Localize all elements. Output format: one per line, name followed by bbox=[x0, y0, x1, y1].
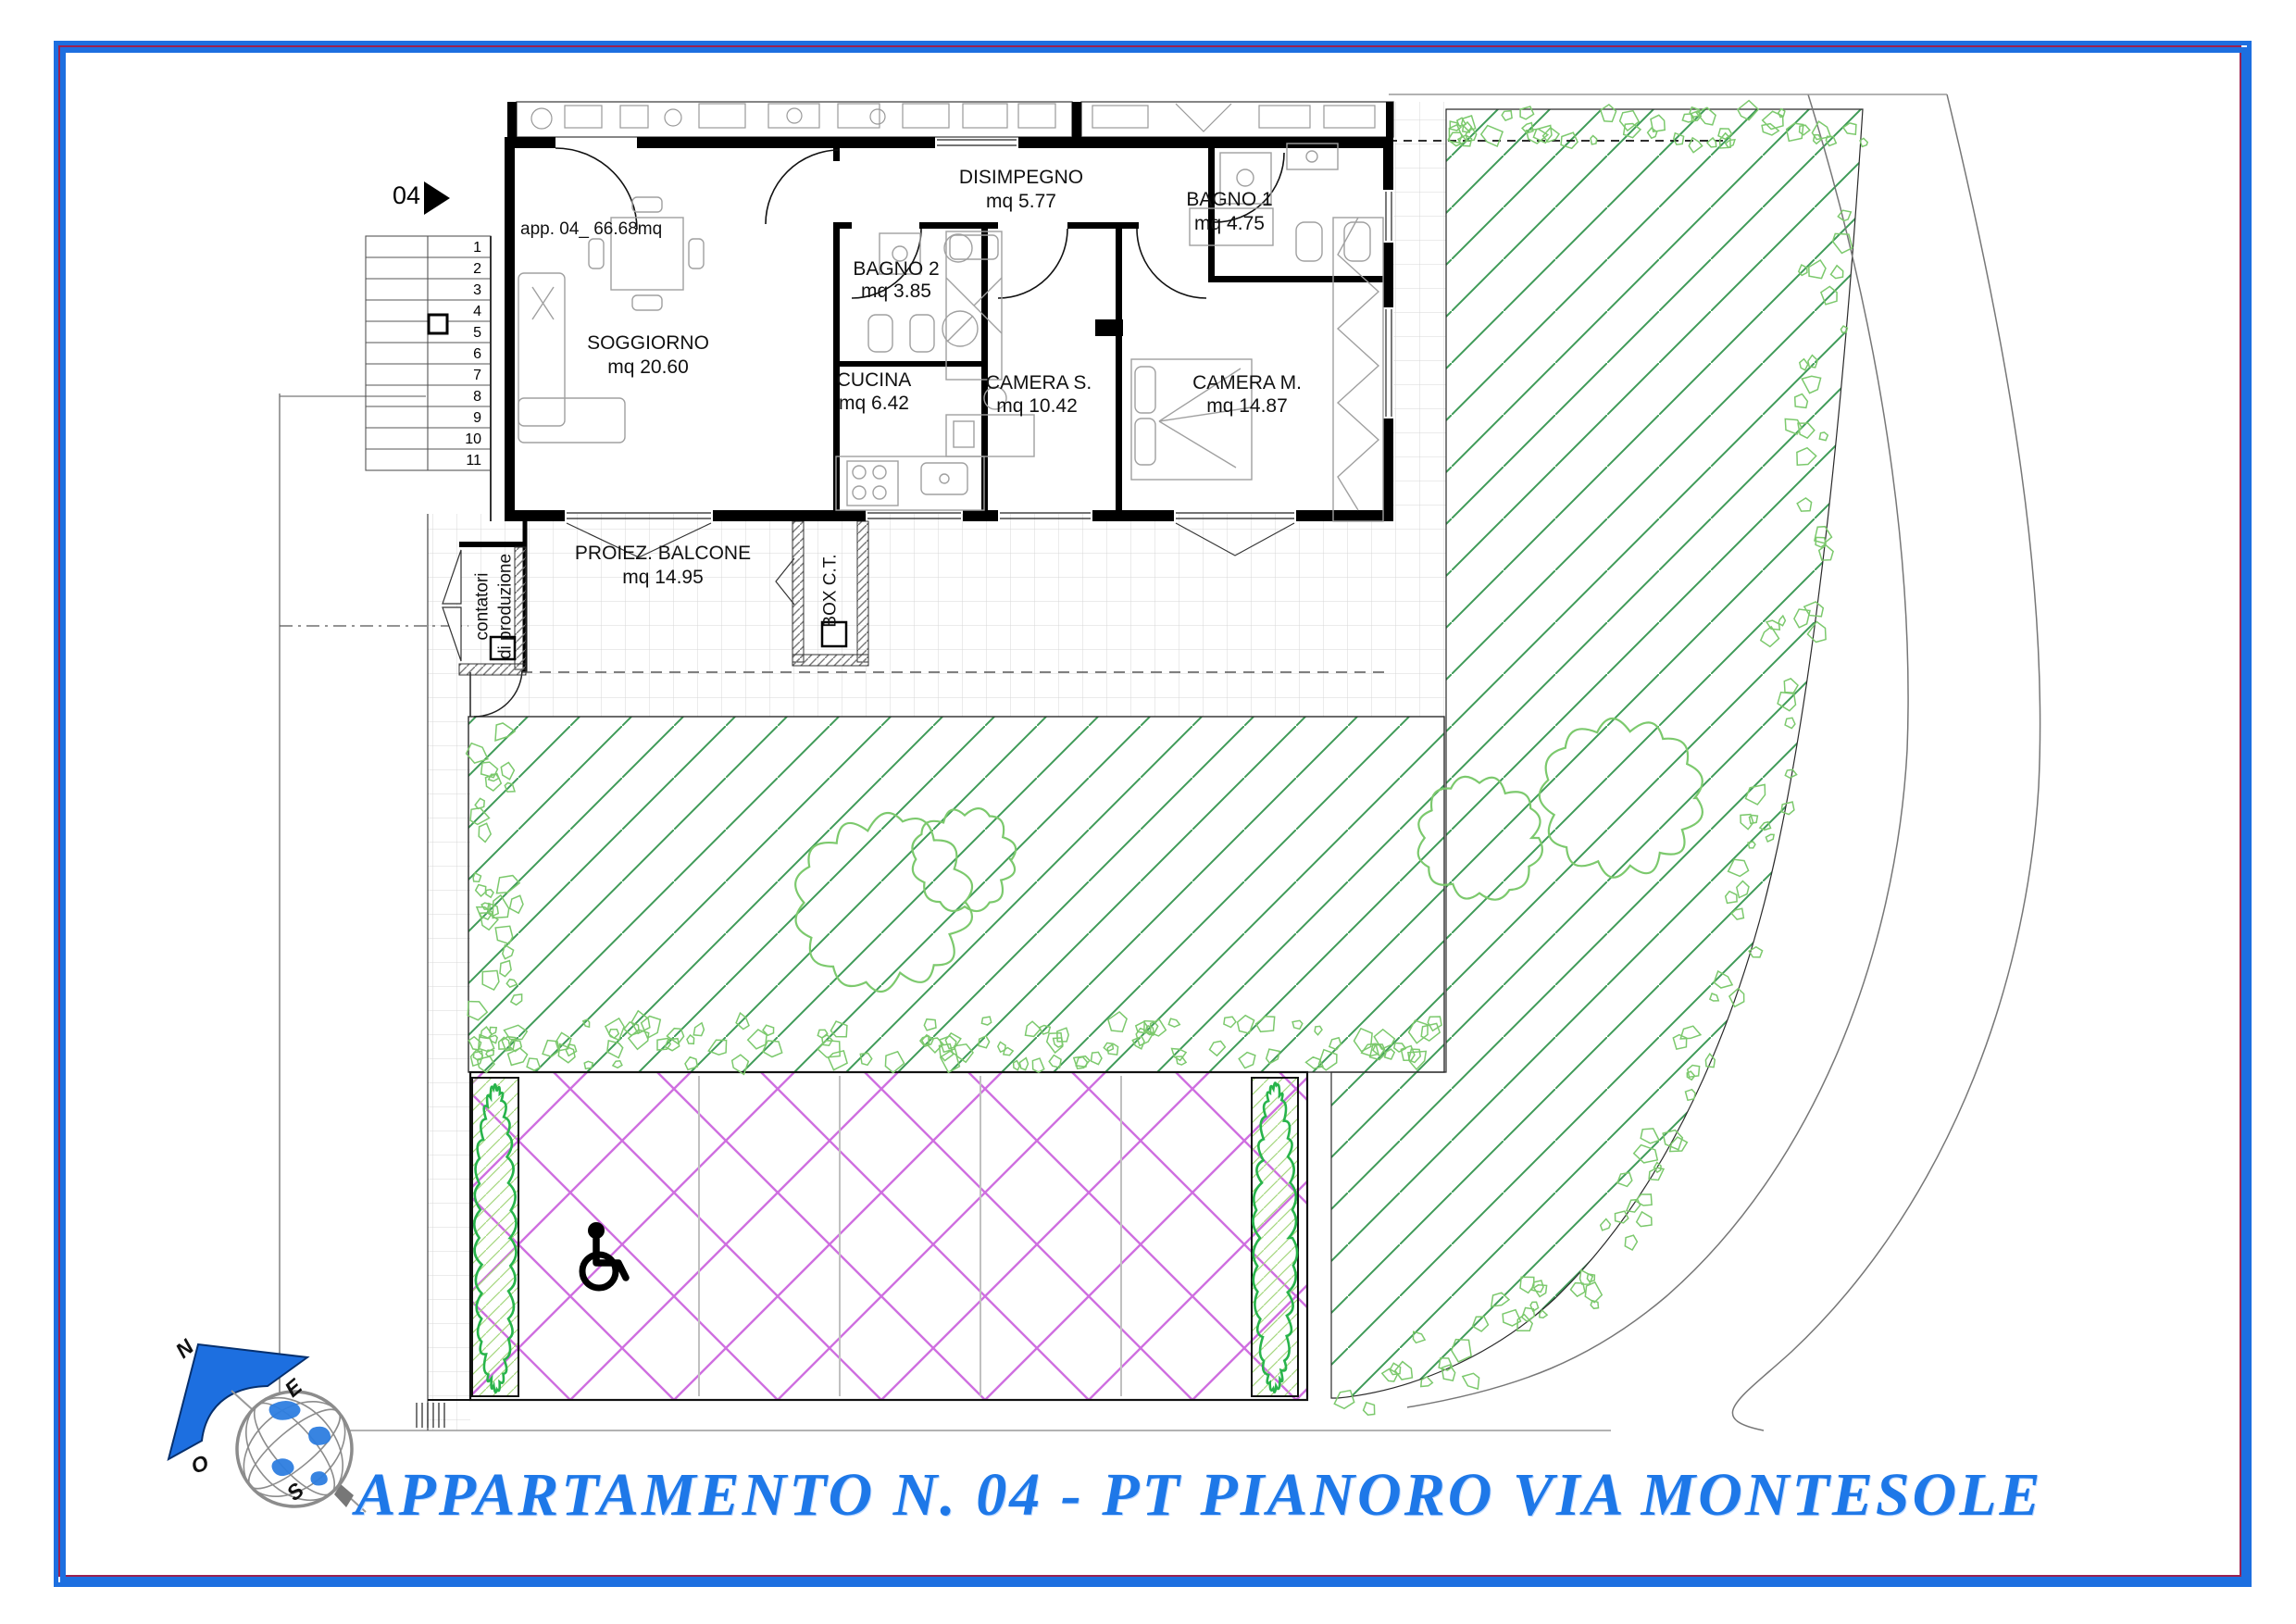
stair-number: 3 bbox=[473, 282, 481, 298]
apartment-area-label: app. 04_ 66.68mq bbox=[520, 219, 662, 240]
room-area-cucina: mq 6.42 bbox=[839, 393, 909, 414]
room-area-balcone: mq 14.95 bbox=[622, 567, 704, 588]
room-area-bagno1: mq 4.75 bbox=[1194, 213, 1265, 234]
stair-number: 11 bbox=[466, 453, 481, 468]
unit-entrance-arrow bbox=[424, 181, 450, 215]
room-area-disimpegno: mq 5.77 bbox=[986, 191, 1056, 212]
compass-o: O bbox=[188, 1450, 212, 1479]
compass-rose: N E O S bbox=[168, 1334, 375, 1530]
stair-number: 2 bbox=[473, 261, 481, 277]
room-area-bagno2: mq 3.85 bbox=[861, 281, 931, 302]
meters-label-line2: di produzione bbox=[495, 554, 517, 659]
unit-number: 04 bbox=[393, 181, 420, 210]
floor-plan-drawing: 1234567891011 bbox=[0, 0, 2296, 1624]
room-label-disimpegno: DISIMPEGNO bbox=[959, 167, 1083, 188]
stair-number: 1 bbox=[473, 240, 481, 256]
meters-label-line1: contatori bbox=[472, 573, 493, 641]
floor-plan-sheet: 1234567891011 bbox=[0, 0, 2296, 1624]
stair-step-numbers: 1234567891011 bbox=[465, 240, 481, 468]
adjacent-unit-strip bbox=[507, 102, 1393, 137]
room-label-bagno1: BAGNO 1 bbox=[1186, 189, 1272, 210]
stair-number: 8 bbox=[473, 389, 481, 405]
stair-number: 4 bbox=[473, 304, 481, 319]
staircase bbox=[366, 236, 491, 521]
room-label-bagno2: BAGNO 2 bbox=[853, 258, 939, 280]
room-label-camera-m: CAMERA M. bbox=[1192, 372, 1302, 394]
sheet-title: APPARTAMENTO N. 04 - PT PIANORO VIA MONT… bbox=[355, 1460, 2042, 1530]
stair-number: 5 bbox=[473, 325, 481, 341]
stair-number: 6 bbox=[473, 346, 481, 362]
room-area-camera-m: mq 14.87 bbox=[1206, 395, 1288, 417]
landing-block bbox=[429, 315, 447, 333]
room-label-cucina: CUCINA bbox=[837, 369, 912, 391]
room-label-balcone: PROIEZ. BALCONE bbox=[575, 543, 751, 564]
stair-number: 10 bbox=[465, 431, 481, 447]
room-area-camera-s: mq 10.42 bbox=[996, 395, 1078, 417]
boiler-box-label: BOX C.T. bbox=[820, 554, 842, 627]
stair-number: 7 bbox=[473, 368, 481, 383]
room-label-camera-s: CAMERA S. bbox=[986, 372, 1092, 394]
room-label-soggiorno: SOGGIORNO bbox=[587, 332, 709, 354]
parking-area bbox=[417, 1072, 1307, 1428]
stair-number: 9 bbox=[473, 410, 481, 426]
garden-middle bbox=[468, 717, 1444, 1072]
room-area-soggiorno: mq 20.60 bbox=[607, 356, 689, 378]
